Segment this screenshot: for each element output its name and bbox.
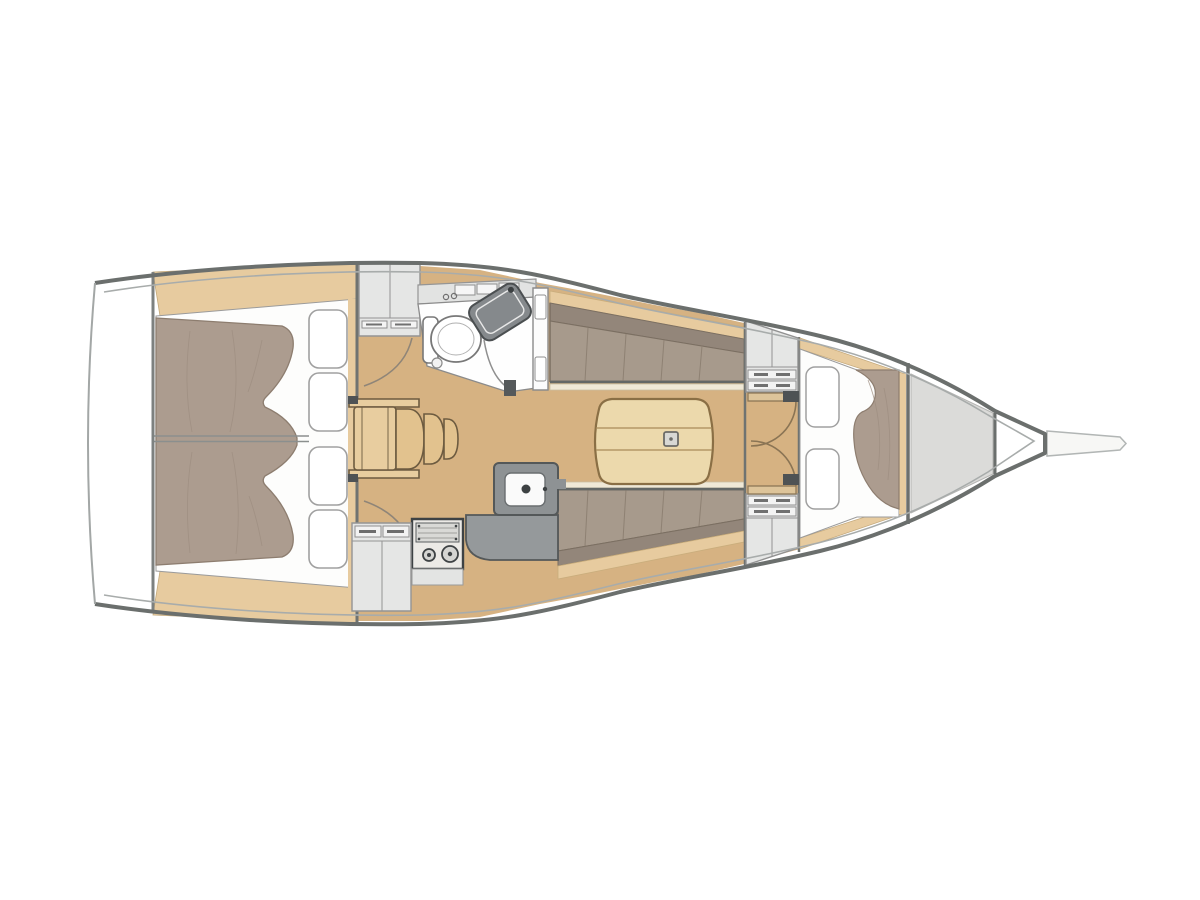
pillow [309,447,347,505]
galley-counter [466,515,558,560]
step-hinge [348,474,358,482]
head-locker [455,285,475,295]
pillow [309,310,347,368]
galley-faucet [522,485,531,494]
galley-sink-unit [494,463,566,515]
cabin-door-leaf [748,486,796,494]
door-hinge [783,474,799,485]
step-rail-bottom [349,470,419,478]
step-tread-2 [396,409,424,469]
floor-plan-canvas [0,0,1200,900]
step-tread-3 [424,414,444,464]
yacht-floor-plan [0,0,1200,900]
forward-cabin [800,338,908,549]
step-tread-4 [444,419,458,459]
pillow [806,367,839,427]
door-hinge [783,391,799,402]
settee-fiddle [550,384,744,390]
pillow [309,373,347,431]
pillow [309,510,347,568]
galley-drawer-unit [352,523,411,611]
pillow [806,449,839,509]
step-rail-top [349,399,419,407]
step-tread-1 [354,407,396,470]
stove-lower-cabinet [412,569,463,585]
step-hinge [348,396,358,404]
galley-stove [412,519,463,569]
aft-cabin [153,263,357,624]
head-door-post [504,380,516,396]
aft-locker-unit [359,264,420,336]
head-wall [533,288,548,390]
bowsprit [1047,431,1126,456]
salon-table [595,399,713,484]
